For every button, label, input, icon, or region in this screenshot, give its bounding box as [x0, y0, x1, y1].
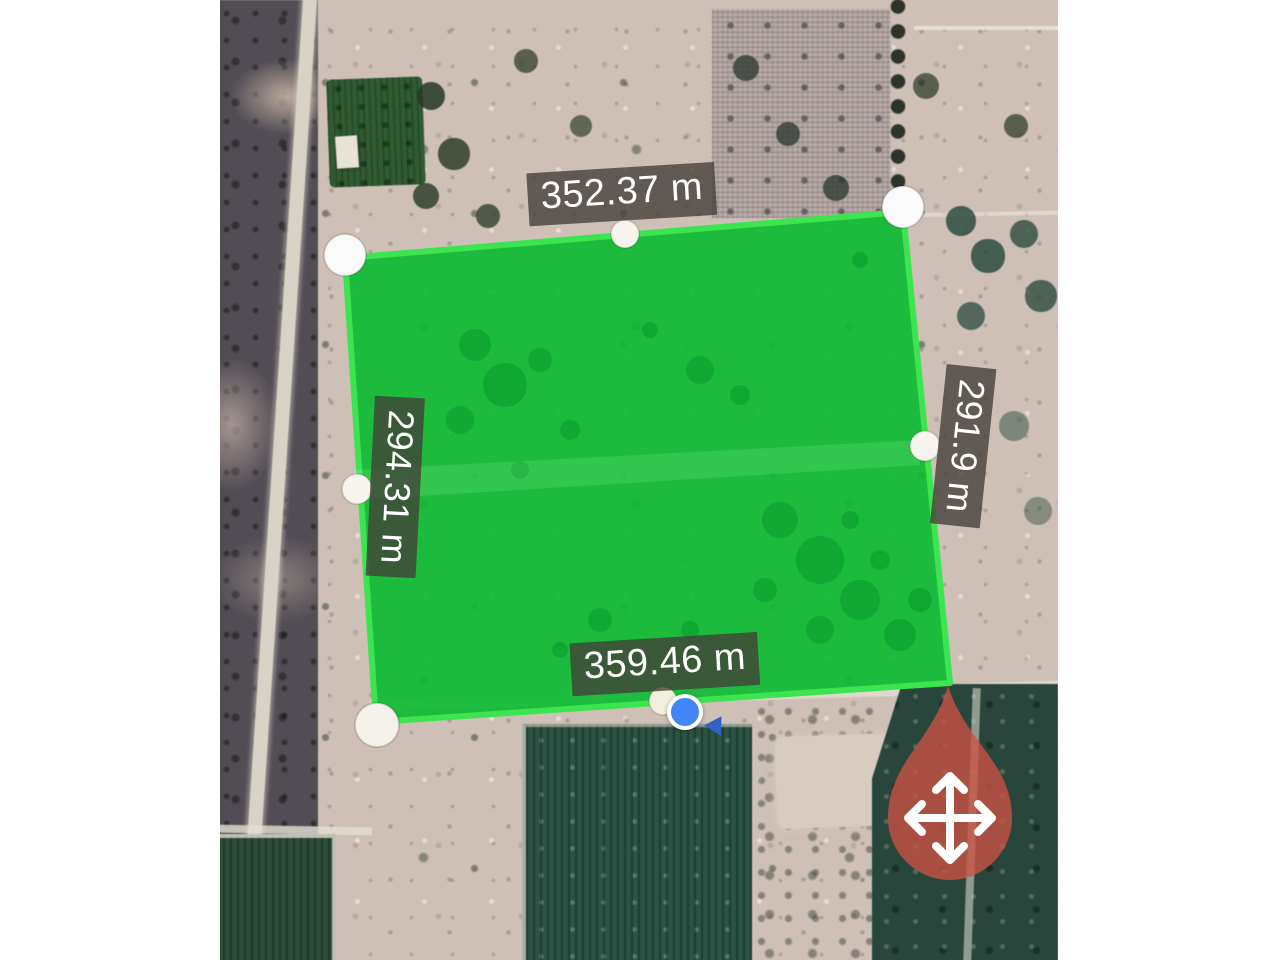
move-vertex-marker[interactable]	[870, 678, 1030, 888]
vertex-handle-top-left[interactable]	[324, 234, 366, 276]
location-dot-icon	[667, 694, 703, 730]
vertex-handle-bottom-left[interactable]	[355, 703, 399, 747]
midpoint-handle-left[interactable]	[342, 474, 372, 504]
vertex-handle-top-right[interactable]	[882, 186, 924, 228]
midpoint-handle-top[interactable]	[611, 220, 639, 248]
measurement-label-left: 294.31 m	[365, 396, 425, 579]
screenshot-stage: 352.37 m 294.31 m 291.9 m 359.46 m	[0, 0, 1280, 960]
midpoint-handle-right[interactable]	[910, 431, 940, 461]
map-canvas[interactable]: 352.37 m 294.31 m 291.9 m 359.46 m	[220, 0, 1058, 960]
